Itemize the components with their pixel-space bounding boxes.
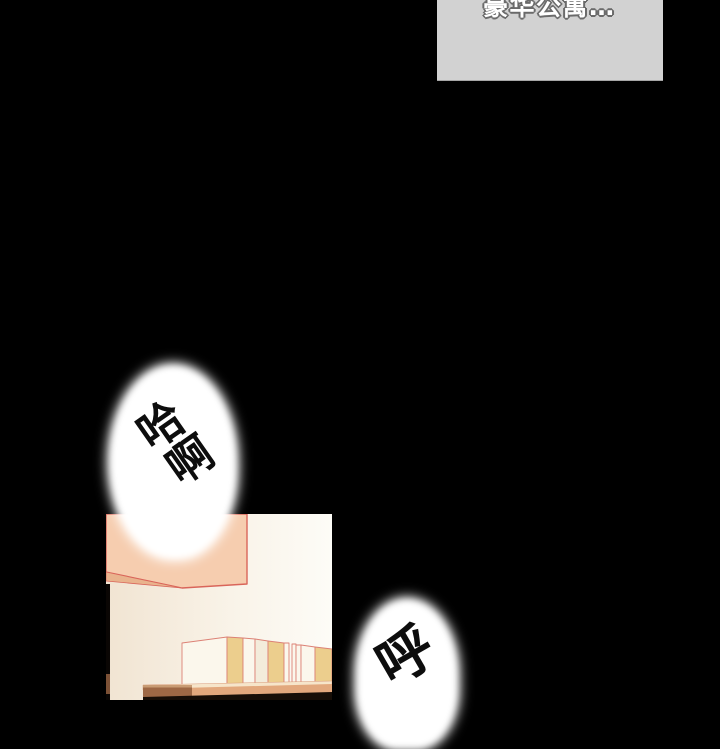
caption-text: 豪华公寓… bbox=[483, 0, 616, 23]
caption-box: 豪华公寓… bbox=[437, 0, 663, 81]
panel-left-shadow bbox=[106, 584, 110, 700]
bubble-hu-char: 呼 bbox=[368, 619, 444, 695]
